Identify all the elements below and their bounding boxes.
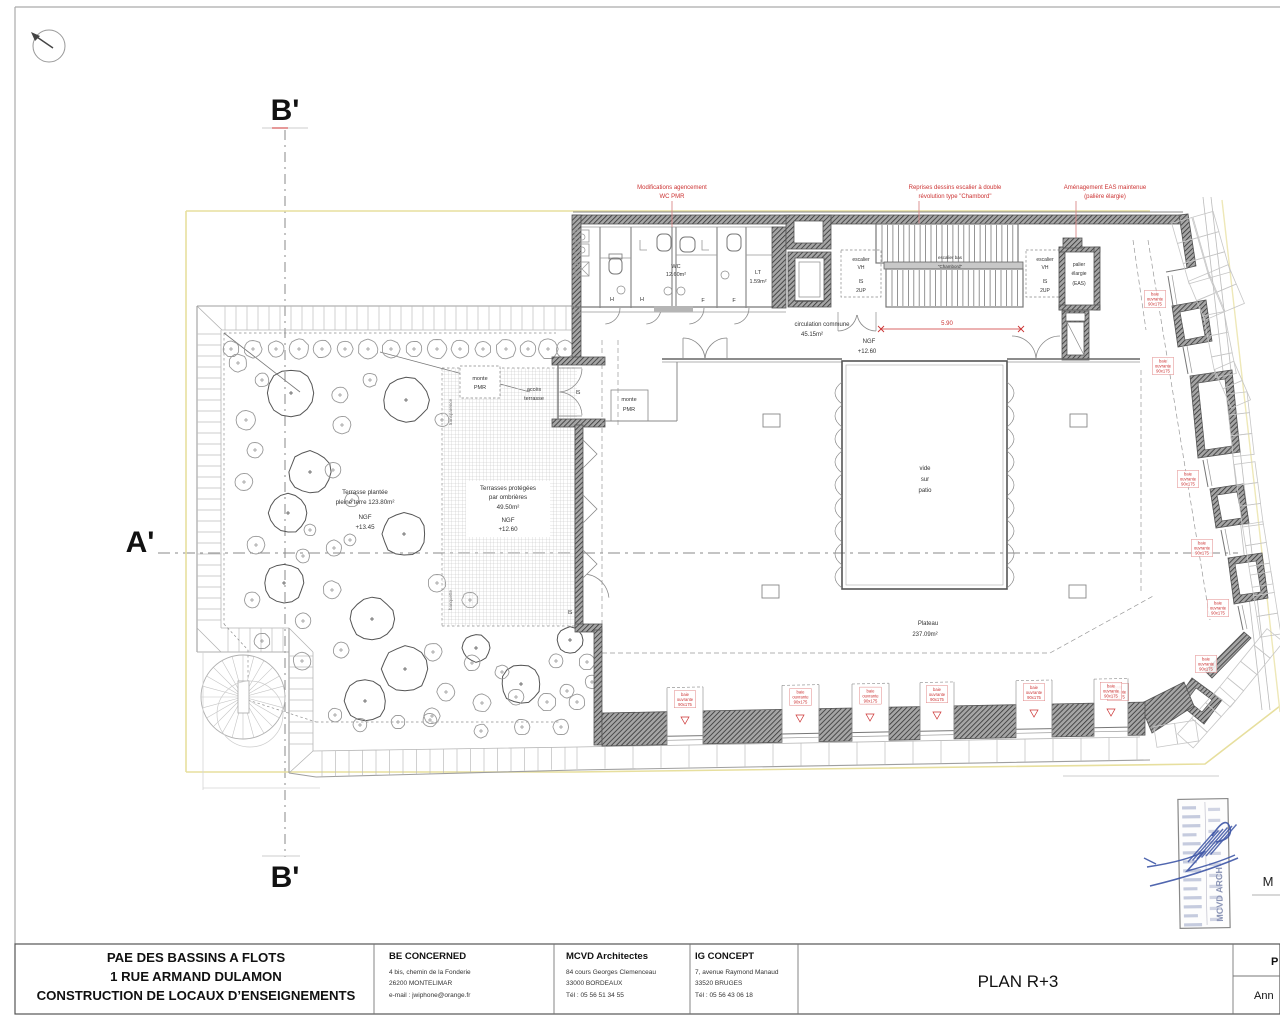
svg-text:Plateau: Plateau	[918, 621, 938, 627]
svg-text:M: M	[1263, 874, 1274, 889]
svg-text:escalier bas: escalier bas	[938, 255, 963, 260]
svg-text:Modifications agencement: Modifications agencement	[637, 185, 707, 191]
svg-text:Aménagement EAS maintenue: Aménagement EAS maintenue	[1064, 185, 1147, 191]
svg-text:H: H	[610, 297, 614, 303]
svg-text:révolution type "Chambord": révolution type "Chambord"	[919, 194, 992, 200]
svg-text:(EAS): (EAS)	[1072, 281, 1086, 287]
svg-text:PAE DES BASSINS A FLOTS: PAE DES BASSINS A FLOTS	[107, 950, 285, 965]
svg-text:IS: IS	[568, 610, 573, 616]
svg-text:Terrasses protégées: Terrasses protégées	[480, 485, 536, 492]
svg-text:4 bis, chemin de la Fonderie: 4 bis, chemin de la Fonderie	[389, 969, 471, 976]
svg-text:WC PMR: WC PMR	[660, 194, 686, 200]
svg-text:90x175: 90x175	[1199, 667, 1213, 672]
svg-text:monte: monte	[472, 376, 487, 382]
svg-text:33520 BRUGES: 33520 BRUGES	[695, 980, 743, 987]
svg-text:PLAN R+3: PLAN R+3	[978, 972, 1059, 991]
svg-text:26200 MONTELIMAR: 26200 MONTELIMAR	[389, 980, 453, 987]
svg-text:e-mail : jwiphone@orange.fr: e-mail : jwiphone@orange.fr	[389, 992, 471, 999]
svg-text:BE CONCERNED: BE CONCERNED	[389, 951, 466, 962]
svg-text:84 cours Georges Clemenceau: 84 cours Georges Clemenceau	[566, 969, 656, 976]
svg-text:+12.60: +12.60	[498, 526, 518, 533]
svg-text:90x175: 90x175	[1104, 694, 1118, 699]
svg-text:90x175: 90x175	[678, 702, 692, 707]
svg-text:transparence: transparence	[448, 398, 453, 425]
svg-text:90x175: 90x175	[1195, 551, 1209, 556]
svg-text:IS: IS	[576, 390, 581, 396]
svg-text:Ann: Ann	[1254, 990, 1274, 1002]
svg-text:vide: vide	[919, 466, 931, 472]
svg-text:45.15m²: 45.15m²	[801, 332, 823, 338]
svg-text:2UP: 2UP	[1040, 288, 1050, 294]
svg-text:banquette: banquette	[448, 589, 453, 610]
svg-text:WC: WC	[671, 264, 680, 270]
svg-text:NGF: NGF	[358, 514, 371, 521]
svg-text:IG CONCEPT: IG CONCEPT	[695, 951, 754, 962]
svg-text:Tél : 05 56 43 06 18: Tél : 05 56 43 06 18	[695, 992, 753, 999]
svg-text:monte: monte	[621, 397, 636, 403]
svg-text:H: H	[640, 297, 644, 303]
svg-text:33000 BORDEAUX: 33000 BORDEAUX	[566, 980, 623, 987]
svg-text:IS: IS	[1043, 279, 1048, 285]
svg-text:PMR: PMR	[474, 385, 486, 391]
svg-text:par ombrières: par ombrières	[489, 494, 527, 501]
svg-text:90x175: 90x175	[930, 697, 944, 702]
svg-text:90x175: 90x175	[1156, 369, 1170, 374]
svg-text:Reprises dessins escalier à do: Reprises dessins escalier à double	[909, 185, 1002, 191]
svg-text:LT: LT	[755, 270, 762, 276]
svg-text:90x175: 90x175	[1181, 482, 1195, 487]
svg-text:1 RUE ARMAND DULAMON: 1 RUE ARMAND DULAMON	[110, 969, 282, 984]
svg-text:élargie: élargie	[1071, 271, 1086, 277]
svg-text:49.50m²: 49.50m²	[497, 504, 520, 511]
svg-text:90x175: 90x175	[1148, 302, 1162, 307]
svg-text:12.60m²: 12.60m²	[666, 272, 686, 278]
svg-text:90x175: 90x175	[794, 700, 808, 705]
svg-text:(palière élargie): (palière élargie)	[1084, 194, 1126, 200]
svg-text:90x175: 90x175	[1211, 611, 1225, 616]
svg-text:NGF: NGF	[863, 339, 876, 345]
svg-text:Terrasse plantée: Terrasse plantée	[342, 489, 388, 496]
svg-text:CONSTRUCTION DE LOCAUX D’ENSEI: CONSTRUCTION DE LOCAUX D’ENSEIGNEMENTS	[37, 988, 356, 1003]
svg-text:237.09m²: 237.09m²	[912, 632, 937, 638]
svg-text:palier: palier	[1073, 262, 1086, 268]
svg-text:terrasse: terrasse	[524, 396, 544, 402]
svg-text:NGF: NGF	[501, 517, 514, 524]
svg-text:sur: sur	[921, 477, 929, 483]
svg-text:90x175: 90x175	[1027, 695, 1041, 700]
svg-text:+12.60: +12.60	[858, 349, 877, 355]
svg-text:VH: VH	[858, 265, 865, 271]
svg-text:escalier: escalier	[1036, 257, 1054, 263]
svg-text:1.59m²: 1.59m²	[749, 279, 766, 285]
svg-text:patio: patio	[918, 488, 932, 494]
svg-text:+13.45: +13.45	[355, 524, 375, 531]
svg-text:escalier: escalier	[852, 257, 870, 263]
svg-text:90x175: 90x175	[864, 698, 878, 703]
svg-text:MCVD Architectes: MCVD Architectes	[566, 951, 648, 962]
svg-text:A': A'	[126, 526, 155, 559]
svg-text:5.90: 5.90	[941, 321, 953, 327]
svg-text:PMR: PMR	[623, 407, 635, 413]
svg-text:pleine terre 123.80m²: pleine terre 123.80m²	[336, 499, 395, 506]
svg-text:"Chambord": "Chambord"	[938, 264, 963, 269]
svg-text:B': B'	[271, 94, 300, 127]
svg-text:VH: VH	[1042, 265, 1049, 271]
svg-text:7, avenue Raymond Manaud: 7, avenue Raymond Manaud	[695, 969, 779, 976]
svg-text:P: P	[1271, 956, 1278, 968]
svg-text:circulation commune: circulation commune	[794, 322, 850, 328]
svg-text:B': B'	[271, 861, 300, 894]
svg-text:Tél : 05 56 51 34 55: Tél : 05 56 51 34 55	[566, 992, 624, 999]
svg-text:accès: accès	[527, 387, 542, 393]
svg-text:2UP: 2UP	[856, 288, 866, 294]
svg-text:IS: IS	[859, 279, 864, 285]
